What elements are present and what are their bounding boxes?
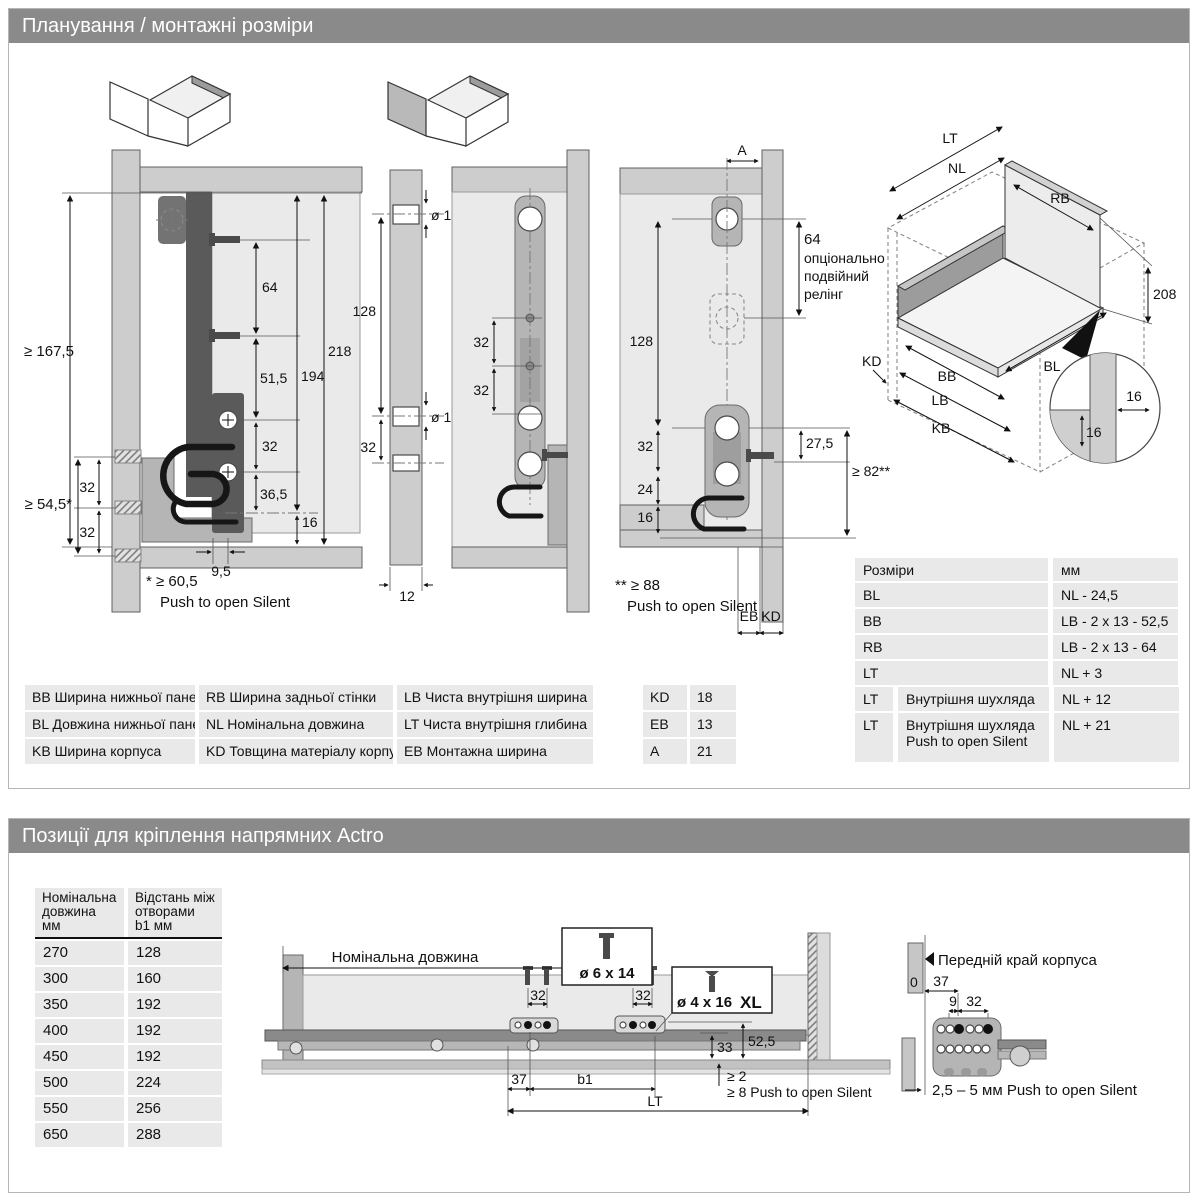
- b1-192a: 192: [128, 993, 222, 1017]
- abbr-table: KD 18 EB 13 A 21: [643, 685, 736, 764]
- table-row: 350192: [35, 993, 222, 1017]
- section-planning-header: Планування / монтажні розміри: [9, 9, 1189, 43]
- len-400: 400: [35, 1019, 124, 1043]
- dims-header-label: Розміри: [855, 558, 1048, 581]
- dims-bl-label: BL: [855, 583, 1048, 607]
- col2-line3: b1 мм: [135, 919, 222, 933]
- col1-line1: Номінальна: [42, 891, 124, 905]
- b1-128: 128: [128, 941, 222, 965]
- table-row: LT NL + 3: [855, 661, 1180, 685]
- lengths-col2-header: Відстань між отворами b1 мм: [128, 888, 222, 937]
- b1-256: 256: [128, 1097, 222, 1121]
- b1-192b: 192: [128, 1019, 222, 1043]
- abbr-a-value: 21: [690, 739, 736, 764]
- dims-lt2-code: LT: [855, 687, 893, 711]
- table-row: 450192: [35, 1045, 222, 1069]
- legend-nl: NL Номінальна довжина: [199, 712, 393, 737]
- table-row: 650288: [35, 1123, 222, 1147]
- dims-lt3-value: NL + 21: [1054, 713, 1179, 762]
- table-row: 400192: [35, 1019, 222, 1043]
- dimensions-table-header: Розміри мм: [855, 558, 1180, 581]
- abbr-eb-label: EB: [643, 712, 687, 737]
- len-270: 270: [35, 941, 124, 965]
- legend-eb: EB Монтажна ширина: [397, 739, 593, 764]
- len-550: 550: [35, 1097, 124, 1121]
- col2-line1: Відстань між: [135, 891, 222, 905]
- col1-line3: мм: [42, 919, 124, 933]
- abbr-kd-value: 18: [690, 685, 736, 710]
- dims-header-unit: мм: [1053, 558, 1178, 581]
- dimensions-table: Розміри мм BL NL - 24,5 BB LB - 2 x 13 -…: [855, 558, 1180, 764]
- len-300: 300: [35, 967, 124, 991]
- b1-192c: 192: [128, 1045, 222, 1069]
- dims-lt3-label-line2: Push to open Silent: [906, 733, 1049, 749]
- table-row: LT Внутрішня шухляда Push to open Silent…: [855, 713, 1180, 762]
- dims-bb-value: LB - 2 x 13 - 52,5: [1053, 609, 1178, 633]
- page: Планування / монтажні розміри: [0, 0, 1199, 1200]
- dims-lt-value: NL + 3: [1053, 661, 1178, 685]
- dims-lt2-value: NL + 12: [1054, 687, 1179, 711]
- legend-kd: KD Товщина матеріалу корпуса: [199, 739, 393, 764]
- len-500: 500: [35, 1071, 124, 1095]
- lengths-table-header: Номінальна довжина мм Відстань між отвор…: [35, 888, 222, 939]
- dims-rb-value: LB - 2 x 13 - 64: [1053, 635, 1178, 659]
- len-650: 650: [35, 1123, 124, 1147]
- legend-bl: BL Довжина нижньої панелі: [25, 712, 195, 737]
- table-row: RB LB - 2 x 13 - 64: [855, 635, 1180, 659]
- section-planning-title: Планування / монтажні розміри: [22, 15, 313, 37]
- dims-lt3-label: Внутрішня шухляда Push to open Silent: [898, 713, 1049, 762]
- lengths-table: Номінальна довжина мм Відстань між отвор…: [35, 888, 222, 1147]
- section-actro-title: Позиції для кріплення напрямних Actro: [22, 825, 384, 847]
- dims-lt-label: LT: [855, 661, 1048, 685]
- b1-160: 160: [128, 967, 222, 991]
- abbr-kd-label: KD: [643, 685, 687, 710]
- legend-kb: KB Ширина корпуса: [25, 739, 195, 764]
- col2-line2: отворами: [135, 905, 222, 919]
- table-row: BB LB - 2 x 13 - 52,5: [855, 609, 1180, 633]
- table-row: 270128: [35, 941, 222, 965]
- dims-lt2-label: Внутрішня шухляда: [898, 687, 1049, 711]
- table-row: LT Внутрішня шухляда NL + 12: [855, 687, 1180, 711]
- dims-bb-label: BB: [855, 609, 1048, 633]
- len-450: 450: [35, 1045, 124, 1069]
- legend-bb: BB Ширина нижньої панелі: [25, 685, 195, 710]
- section-actro-header: Позиції для кріплення напрямних Actro: [9, 819, 1189, 853]
- legend-rb: RB Ширина задньої стінки: [199, 685, 393, 710]
- dims-lt3-label-line1: Внутрішня шухляда: [906, 717, 1049, 733]
- table-row: 300160: [35, 967, 222, 991]
- table-row: 550256: [35, 1097, 222, 1121]
- abbr-eb-value: 13: [690, 712, 736, 737]
- table-row: BL NL - 24,5: [855, 583, 1180, 607]
- abbr-a-label: A: [643, 739, 687, 764]
- legend-lb: LB Чиста внутрішня ширина: [397, 685, 593, 710]
- legend-lt: LT Чиста внутрішня глибина: [397, 712, 593, 737]
- b1-288: 288: [128, 1123, 222, 1147]
- b1-224: 224: [128, 1071, 222, 1095]
- dims-lt3-code: LT: [855, 713, 893, 762]
- table-row: 500224: [35, 1071, 222, 1095]
- lengths-col1-header: Номінальна довжина мм: [35, 888, 124, 937]
- dims-rb-label: RB: [855, 635, 1048, 659]
- dims-bl-value: NL - 24,5: [1053, 583, 1178, 607]
- len-350: 350: [35, 993, 124, 1017]
- legend-table: BB Ширина нижньої панелі RB Ширина заднь…: [25, 685, 593, 764]
- col1-line2: довжина: [42, 905, 124, 919]
